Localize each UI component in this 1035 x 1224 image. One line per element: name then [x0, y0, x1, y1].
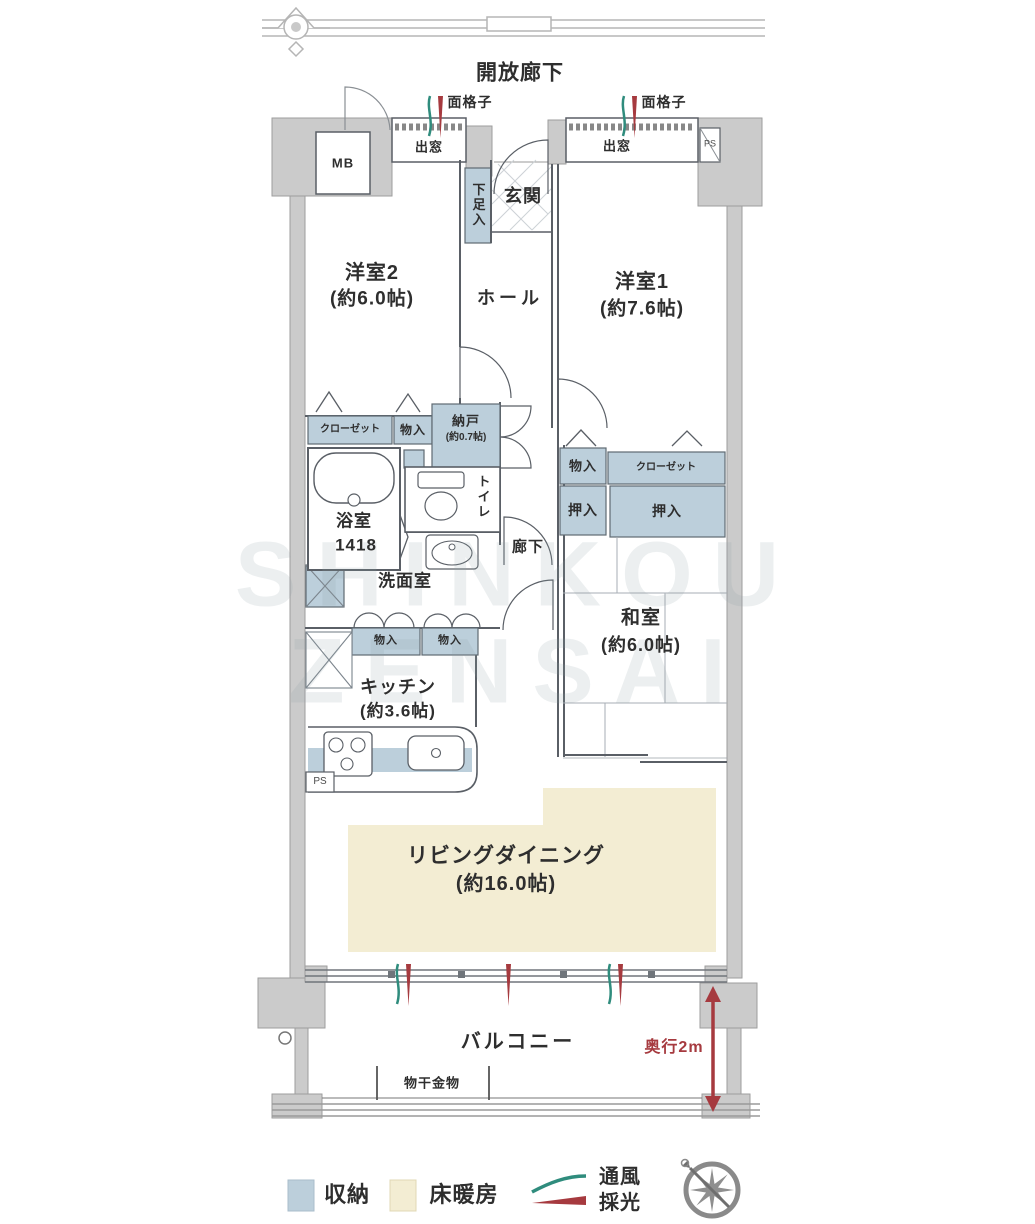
- open-corridor-label: 開放廊下: [476, 63, 564, 84]
- balcony-label: バルコニー: [461, 1032, 576, 1052]
- balcony-depth-label: 奥行2m: [644, 1040, 703, 1056]
- corridor-label: 廊下: [512, 540, 544, 555]
- room-size-kitchen: (約3.6帖): [360, 703, 436, 720]
- room-size-western2: (約6.0帖): [330, 290, 414, 309]
- room-label-western2: 洋室2: [345, 263, 399, 283]
- legend-vent-label2: 採光: [599, 1193, 641, 1213]
- ps-kitchen-label: PS: [313, 777, 326, 787]
- shoe-box-label: 下足入: [472, 183, 485, 228]
- room-size-japanese: (約6.0帖): [601, 636, 681, 654]
- legend-vent-label1: 通風: [599, 1167, 641, 1187]
- laundry-hardware-label: 物干金物: [404, 1077, 460, 1090]
- floorplan-page: SHINKOU ZENSAI 開放廊下 面格子 面格子 MB PS 出窓 出窓 …: [0, 0, 1035, 1224]
- storeroom-size: (約0.7帖): [446, 433, 487, 443]
- closet-w2-label: クローゼット: [320, 425, 380, 435]
- bathroom-size: 1418: [335, 537, 377, 554]
- legend-storage-label: 収納: [324, 1184, 370, 1206]
- oshiire-left-label: 押入: [568, 503, 598, 517]
- mono-k1-label: 物入: [374, 636, 398, 647]
- room-size-western1: (約7.6帖): [600, 300, 684, 319]
- baywindow-left-label: 出窓: [415, 141, 443, 154]
- mono-j-label: 物入: [569, 460, 597, 473]
- washroom-label: 洗面室: [378, 573, 432, 590]
- room-label-living: リビングダイニング: [407, 846, 605, 867]
- bathroom-label: 浴室: [336, 513, 372, 530]
- legend-floorheat-label: 床暖房: [429, 1184, 498, 1206]
- room-size-living: (約16.0帖): [456, 874, 556, 894]
- corridor-railing-ornament: [262, 8, 765, 56]
- bay-window-right: [566, 118, 698, 162]
- entrance-label: 玄関: [504, 187, 542, 205]
- toilet-bowl-icon: [425, 492, 457, 520]
- floor-heating-area: [348, 788, 716, 952]
- storeroom-label: 納戸: [452, 415, 480, 428]
- mono-k2-label: 物入: [438, 636, 462, 647]
- kitchen-counter: [306, 727, 477, 792]
- room-label-kitchen: キッチン: [360, 678, 436, 696]
- legend-vent-icon: [532, 1176, 586, 1205]
- sliding-door: [563, 755, 727, 762]
- legend-floorheat-swatch: [390, 1180, 416, 1211]
- legend-storage-swatch: [288, 1180, 314, 1211]
- lattice-right-label: 面格子: [642, 95, 687, 109]
- ps-top-label: PS: [704, 140, 716, 149]
- oshiire-right-label: 押入: [652, 504, 682, 518]
- closet-j-label: クローゼット: [636, 463, 696, 473]
- hall-label: ホール: [477, 289, 543, 307]
- room-label-japanese: 和室: [621, 609, 661, 628]
- compass-icon: [682, 1160, 739, 1217]
- mono-w2-label: 物入: [400, 424, 426, 436]
- lattice-left-label: 面格子: [448, 95, 493, 109]
- toilet-label: トイレ: [477, 475, 490, 520]
- toilet-tank-icon: [418, 472, 464, 488]
- meter-box-label: MB: [332, 157, 354, 170]
- sink-icon: [408, 736, 464, 770]
- baywindow-right-label: 出窓: [603, 140, 631, 153]
- balcony-window-band: [305, 970, 727, 982]
- room-label-western1: 洋室1: [615, 272, 669, 292]
